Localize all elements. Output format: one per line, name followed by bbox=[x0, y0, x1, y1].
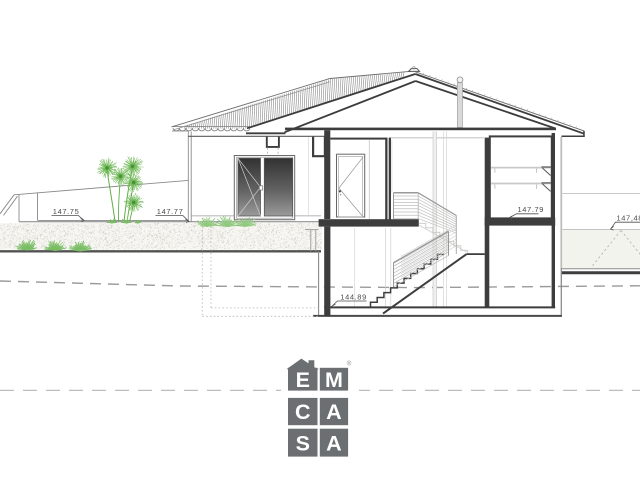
svg-text:E: E bbox=[296, 368, 310, 392]
svg-text:144.89: 144.89 bbox=[340, 292, 367, 301]
svg-text:147,48: 147,48 bbox=[617, 214, 640, 223]
svg-text:M: M bbox=[325, 368, 343, 392]
svg-text:147.79: 147.79 bbox=[518, 205, 545, 214]
svg-text:147.77: 147.77 bbox=[157, 207, 184, 216]
svg-text:S: S bbox=[296, 431, 310, 455]
svg-text:C: C bbox=[295, 400, 311, 424]
svg-text:®: ® bbox=[347, 360, 352, 367]
svg-text:147.75: 147.75 bbox=[53, 207, 80, 216]
svg-text:A: A bbox=[326, 400, 342, 424]
svg-text:A: A bbox=[326, 431, 342, 455]
